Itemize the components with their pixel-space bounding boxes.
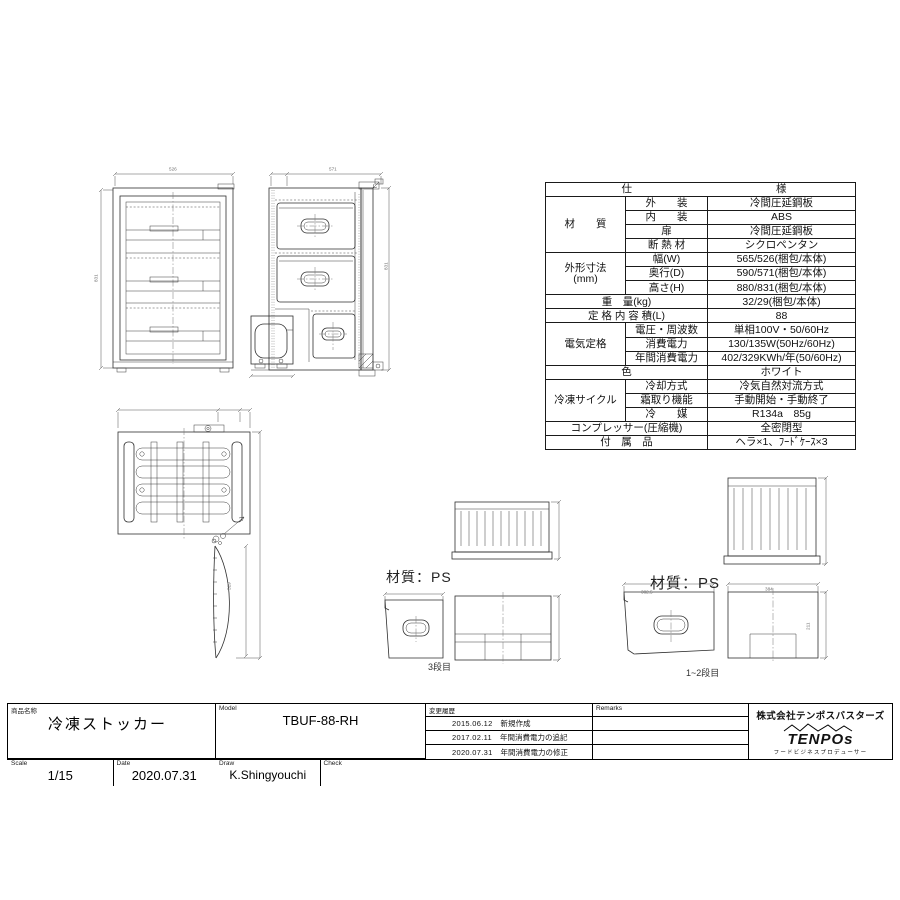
front-cabinet-outline xyxy=(113,184,234,368)
logo-roof-icon xyxy=(784,723,858,731)
case3-front-view xyxy=(455,592,561,664)
title-block-model-col: Model TBUF-88-RH Draw K.Shingyouchi Chec… xyxy=(216,704,426,759)
case3-side-view xyxy=(383,592,445,658)
date-label: Date xyxy=(117,760,131,767)
logo-tagline: フードビジネスプロデューサー xyxy=(749,748,892,756)
side-door-bottom xyxy=(359,182,383,376)
title-block: 商品名称 冷凍ストッカー Scale 1/15 Date 2020.07.31 … xyxy=(7,703,893,760)
product-name-cell: 商品名称 冷凍ストッカー xyxy=(8,704,215,759)
scale-label: Scale xyxy=(11,760,27,767)
condenser-coil xyxy=(124,442,242,522)
spec-label: 扉 xyxy=(626,225,708,239)
dim-side-height: 831 xyxy=(384,262,389,270)
spec-group: 材 質 xyxy=(546,197,626,253)
case3-caption: 3段目 xyxy=(428,660,451,673)
spec-group: 外形寸法 (mm) xyxy=(546,253,626,295)
spec-value: ホワイト xyxy=(708,365,856,379)
spec-label: 霜取り機能 xyxy=(626,393,708,407)
history-date: 2020.07.31 xyxy=(452,748,493,757)
spec-value: 402/329KWh/年(50/60Hz) xyxy=(708,351,856,365)
history-row: 2015.06.12 新規作成 xyxy=(426,717,592,731)
spec-label: 定 格 内 容 積(L) xyxy=(546,309,708,323)
history-note: 新規作成 xyxy=(501,718,531,729)
spec-value: 冷間圧延鋼板 xyxy=(708,225,856,239)
drawing-sheet: { "spec_table": { "header": {"left": "仕"… xyxy=(0,0,900,900)
model-cell: Model TBUF-88-RH xyxy=(216,704,425,759)
title-block-remarks-col: Remarks xyxy=(593,704,749,759)
door-hinge-detail xyxy=(213,517,244,545)
history-date: 2015.06.12 xyxy=(452,719,493,728)
dim-case12-height: 211 xyxy=(806,623,811,630)
side-drawer-1 xyxy=(275,200,357,249)
remarks-empty-row xyxy=(593,745,748,759)
draw-cell: Draw K.Shingyouchi xyxy=(216,759,321,786)
spec-row: 電気定格 電圧・周波数 単相100V・50/60Hz xyxy=(546,323,856,337)
date-cell: Date 2020.07.31 xyxy=(114,759,216,786)
spec-label: 消費電力 xyxy=(626,337,708,351)
title-block-history-col: 変更履歴 2015.06.12 新規作成 2017.02.11 年間消費電力の追… xyxy=(426,704,593,759)
history-note: 年間消費電力の追記 xyxy=(500,732,568,743)
remarks-header: Remarks xyxy=(593,704,748,717)
spec-label: 外 装 xyxy=(626,197,708,211)
date-value: 2020.07.31 xyxy=(114,768,216,783)
spec-row: 材 質 外 装 冷間圧延鋼板 xyxy=(546,197,856,211)
spec-label: 色 xyxy=(546,365,708,379)
case12-material-label: 材質：PS xyxy=(650,572,720,593)
spec-group: 冷凍サイクル xyxy=(546,379,626,421)
spec-value: 590/571(梱包/本体) xyxy=(708,267,856,281)
spec-label: 冷 媒 xyxy=(626,407,708,421)
spec-value: 手動開始・手動終了 xyxy=(708,393,856,407)
spec-value: R134a 85g xyxy=(708,407,856,421)
spec-value: ヘラ×1、ﾌｰﾄﾞｹｰｽ×3 xyxy=(708,435,856,449)
dim-side-depth: 571 xyxy=(329,167,337,172)
draw-label: Draw xyxy=(219,760,234,767)
side-drawer-2 xyxy=(275,253,357,302)
spec-label: 付 属 品 xyxy=(546,435,708,449)
remarks-empty-row xyxy=(593,717,748,731)
spec-value: 単相100V・50/60Hz xyxy=(708,323,856,337)
spec-row: 定 格 内 容 積(L) 88 xyxy=(546,309,856,323)
case12-caption: 1~2段目 xyxy=(686,666,719,679)
spec-value: 565/526(梱包/本体) xyxy=(708,253,856,267)
check-cell: Check xyxy=(321,759,426,786)
case3-material-label: 材質：PS xyxy=(386,567,452,587)
spec-label: コンプレッサー(圧縮機) xyxy=(546,421,708,435)
spec-label: 重 量(kg) xyxy=(546,295,708,309)
title-block-logo-col: 株式会社テンポスバスターズ TENPOs フードビジネスプロデューサー xyxy=(749,704,892,759)
spec-label: 年間消費電力 xyxy=(626,351,708,365)
draw-value: K.Shingyouchi xyxy=(216,768,320,782)
dim-front-width: 526 xyxy=(169,167,177,172)
spec-value: 130/135W(50Hz/60Hz) xyxy=(708,337,856,351)
history-header: 変更履歴 xyxy=(426,704,592,717)
spec-label: 冷却方式 xyxy=(626,379,708,393)
spec-value: 32/29(梱包/本体) xyxy=(708,295,856,309)
spec-header-row: 仕 様 xyxy=(546,183,856,197)
spec-header-right: 様 xyxy=(708,183,856,197)
history-row: 2017.02.11 年間消費電力の追記 xyxy=(426,731,592,745)
spec-row: 色 ホワイト xyxy=(546,365,856,379)
spec-value: ABS xyxy=(708,211,856,225)
model-label: Model xyxy=(219,705,237,712)
history-date: 2017.02.11 xyxy=(452,733,492,742)
case3-ribbed-view xyxy=(452,500,561,561)
scale-cell: Scale 1/15 xyxy=(8,759,114,786)
spec-value: 88 xyxy=(708,309,856,323)
spec-value: 全密閉型 xyxy=(708,421,856,435)
product-name: 冷凍ストッカー xyxy=(8,713,215,734)
spec-value: シクロペンタン xyxy=(708,239,856,253)
spec-row: 付 属 品 ヘラ×1、ﾌｰﾄﾞｹｰｽ×3 xyxy=(546,435,856,449)
spec-header-left: 仕 xyxy=(546,183,708,197)
tenpos-logo-text: TENPOs xyxy=(749,732,892,747)
front-dimension-lines xyxy=(99,172,235,370)
open-door-profile xyxy=(212,539,229,658)
front-view-drawing xyxy=(93,164,245,378)
remarks-empty-row xyxy=(593,731,748,745)
side-cabinet xyxy=(269,179,383,370)
spec-label: 高さ(H) xyxy=(626,281,708,295)
top-view-drawing xyxy=(96,400,292,670)
spec-label: 断 熱 材 xyxy=(626,239,708,253)
company-name: 株式会社テンポスバスターズ xyxy=(749,708,892,722)
title-block-product-col: 商品名称 冷凍ストッカー Scale 1/15 Date 2020.07.31 xyxy=(8,704,216,759)
spec-value: 880/831(梱包/本体) xyxy=(708,281,856,295)
spec-row: コンプレッサー(圧縮機) 全密閉型 xyxy=(546,421,856,435)
history-note: 年間消費電力の修正 xyxy=(501,747,569,758)
food-case-12-drawing xyxy=(610,470,850,680)
spec-row: 外形寸法 (mm) 幅(W) 565/526(梱包/本体) xyxy=(546,253,856,267)
top-cabinet xyxy=(118,425,250,540)
spec-table: 仕 様 材 質 外 装 冷間圧延鋼板 内 装 ABS 扉 冷間圧延鋼板 断 熱 … xyxy=(545,182,855,450)
history-row: 2020.07.31 年間消費電力の修正 xyxy=(426,745,592,759)
case12-front-view xyxy=(726,582,828,662)
dim-front-height: 831 xyxy=(94,274,99,282)
dim-door: 529 xyxy=(227,582,232,590)
spec-label: 奥行(D) xyxy=(626,267,708,281)
scale-value: 1/15 xyxy=(8,768,113,783)
case12-ribbed-view xyxy=(724,476,828,566)
spec-value: 冷間圧延鋼板 xyxy=(708,197,856,211)
spec-row: 冷凍サイクル 冷却方式 冷気自然対流方式 xyxy=(546,379,856,393)
check-label: Check xyxy=(324,760,342,767)
spec-group: 電気定格 xyxy=(546,323,626,365)
spec-value: 冷気自然対流方式 xyxy=(708,379,856,393)
side-section-drawing xyxy=(241,164,397,390)
spec-label: 幅(W) xyxy=(626,253,708,267)
spec-row: 重 量(kg) 32/29(梱包/本体) xyxy=(546,295,856,309)
dim-case12-side-width: 382.5 xyxy=(641,590,653,595)
spec-label: 内 装 xyxy=(626,211,708,225)
dim-case12-front-width: 384 xyxy=(765,587,773,592)
spec-label: 電圧・周波数 xyxy=(626,323,708,337)
model-value: TBUF-88-RH xyxy=(216,713,425,728)
